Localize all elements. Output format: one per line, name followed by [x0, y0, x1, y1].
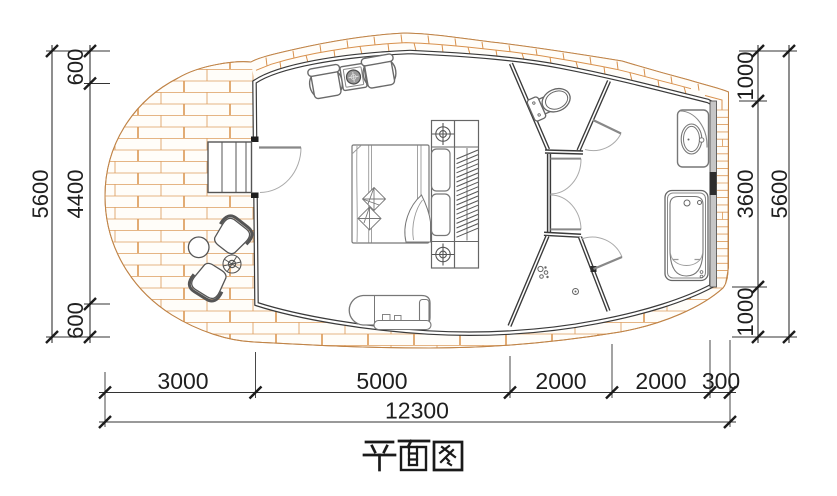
- svg-text:3000: 3000: [157, 368, 208, 394]
- svg-text:600: 600: [63, 49, 88, 86]
- svg-text:2000: 2000: [635, 368, 686, 394]
- svg-text:300: 300: [702, 368, 740, 394]
- svg-text:5600: 5600: [28, 170, 53, 219]
- svg-text:1000: 1000: [733, 52, 758, 101]
- svg-text:5600: 5600: [767, 170, 792, 219]
- svg-text:3600: 3600: [733, 170, 758, 219]
- svg-text:5000: 5000: [356, 368, 407, 394]
- svg-text:2000: 2000: [535, 368, 586, 394]
- svg-text:12300: 12300: [385, 398, 449, 424]
- svg-text:4400: 4400: [63, 170, 88, 219]
- svg-text:1000: 1000: [733, 288, 758, 337]
- svg-text:600: 600: [63, 302, 88, 339]
